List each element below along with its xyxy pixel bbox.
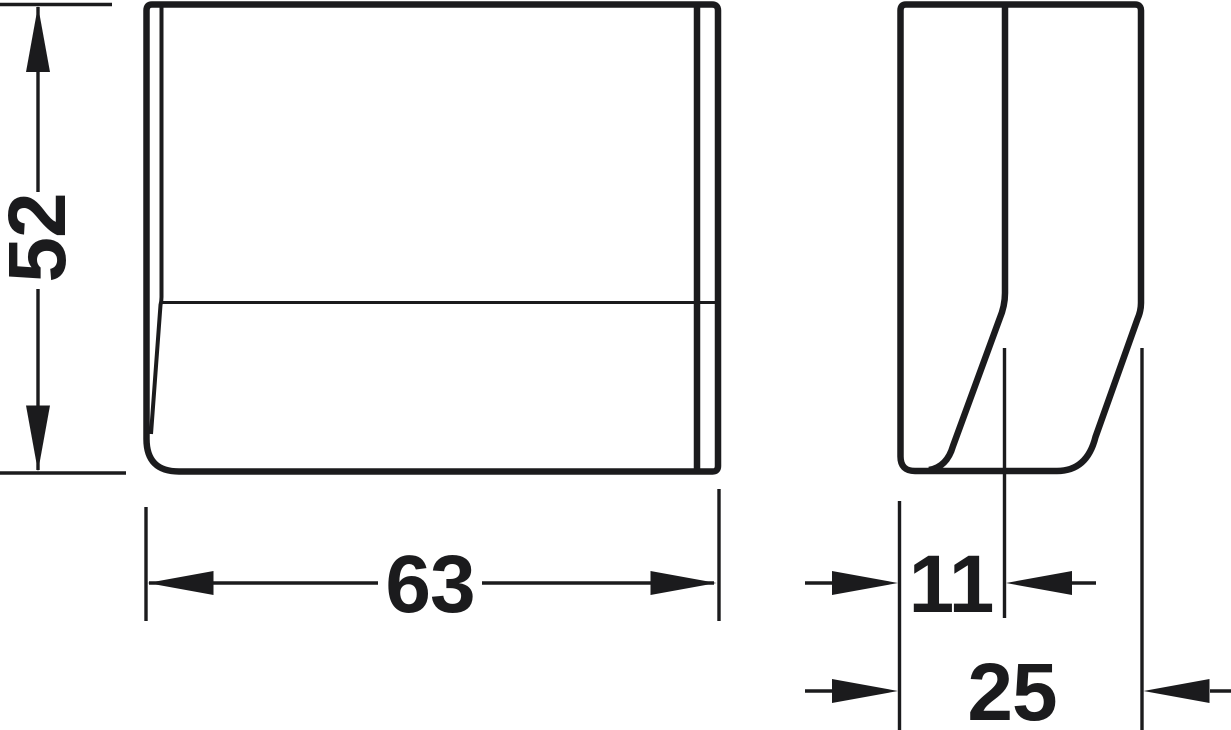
side-profile-view (901, 5, 1142, 472)
dimension-width: 63 (148, 539, 717, 630)
side-view-inner-profile-line (929, 6, 1005, 470)
dimension-height: 52 (0, 6, 83, 472)
dimension-label-total-depth: 25 (967, 647, 1056, 730)
dimension-label-width: 63 (385, 539, 474, 630)
front-view (147, 5, 719, 472)
arrowhead-total-right (1144, 679, 1210, 703)
side-view-outline (901, 5, 1142, 472)
arrowhead-total-left (832, 679, 898, 703)
dimension-label-recess-depth: 11 (909, 539, 994, 630)
front-view-outline (147, 5, 719, 472)
arrowhead-width-right (651, 571, 717, 595)
dimension-recess-depth: 11 (805, 539, 1096, 630)
front-view-left-recess-edge-line (151, 6, 162, 434)
dimension-label-height: 52 (0, 193, 83, 282)
arrowhead-recess-right (1006, 571, 1072, 595)
arrowhead-height-up (26, 6, 50, 72)
technical-drawing-canvas: 52 63 11 25 (0, 0, 1231, 730)
arrowhead-width-left (148, 571, 214, 595)
technical-drawing: 52 63 11 25 (0, 0, 1231, 730)
arrowhead-height-down (26, 406, 50, 472)
dimension-total-depth: 25 (805, 647, 1231, 730)
arrowhead-recess-left (832, 571, 898, 595)
